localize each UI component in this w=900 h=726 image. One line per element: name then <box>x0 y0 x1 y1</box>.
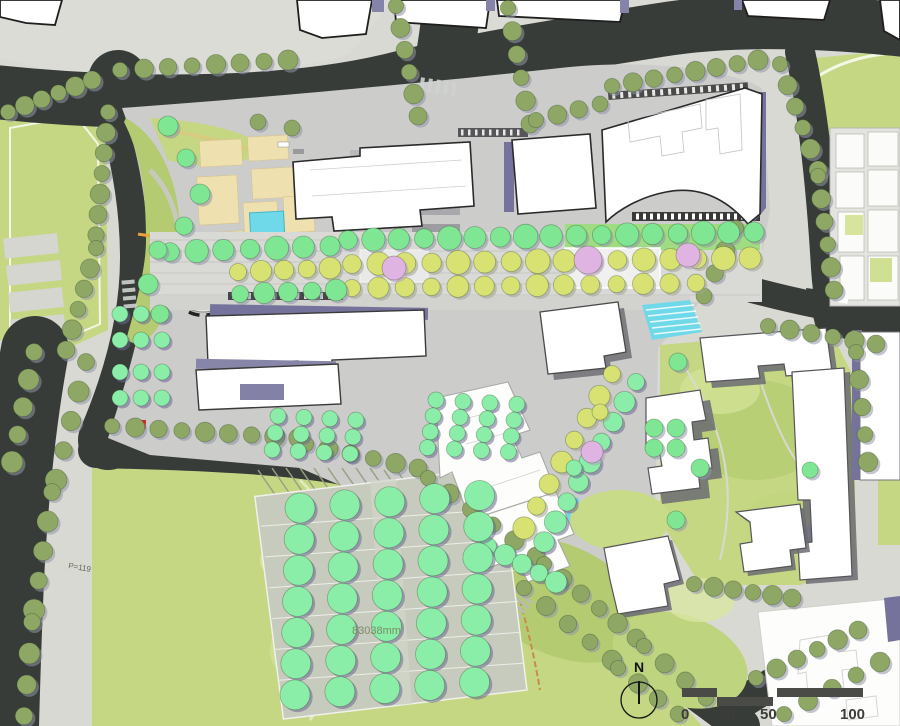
plaza-pool <box>249 211 284 235</box>
building-mid-block <box>512 134 596 214</box>
north-label: N <box>634 659 644 675</box>
ne-parcel-grid <box>830 128 900 306</box>
master-plan-svg: 83038mm P=119 N 0 20 50 100 <box>0 0 900 726</box>
scale-tick-0: 0 <box>681 706 689 723</box>
site-plan-canvas: 83038mm P=119 N 0 20 50 100 <box>0 0 900 726</box>
scale-tick-20: 20 <box>718 706 735 723</box>
scale-tick-100: 100 <box>840 706 865 723</box>
area-dimension-label: 83038mm <box>352 625 401 637</box>
scale-tick-50: 50 <box>760 706 777 723</box>
